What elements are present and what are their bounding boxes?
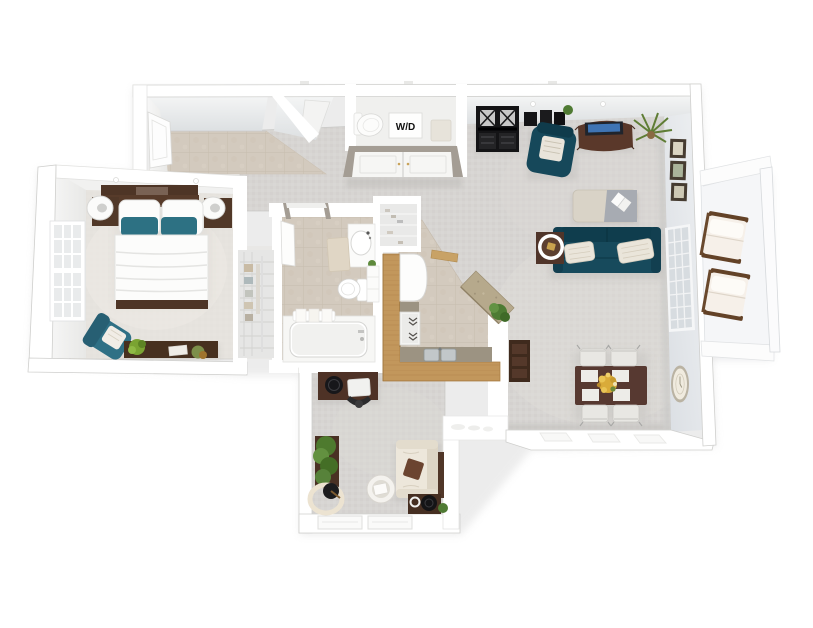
svg-text:W/D: W/D <box>396 122 415 133</box>
